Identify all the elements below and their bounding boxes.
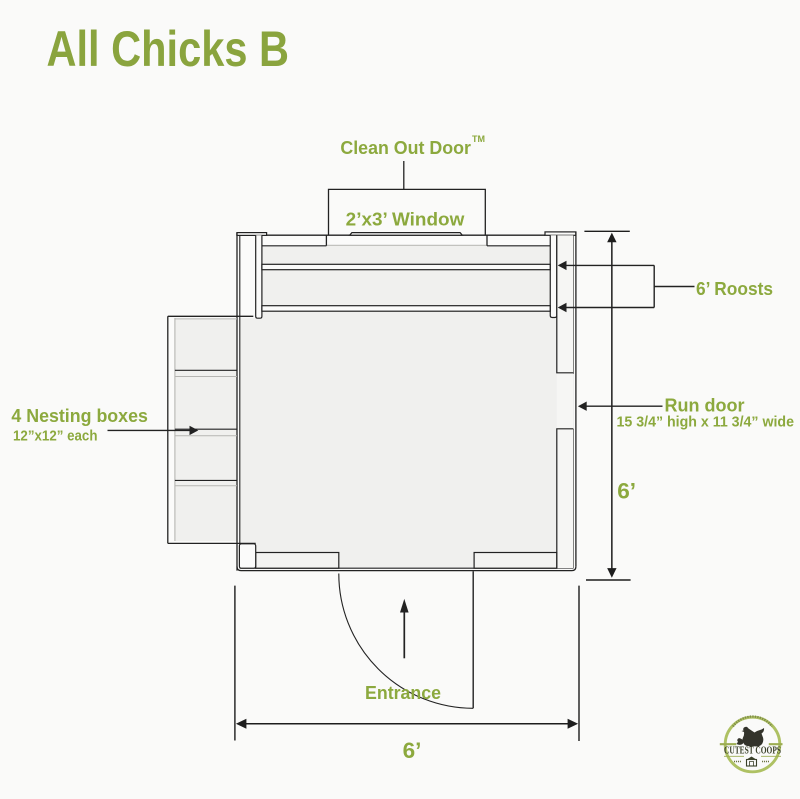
svg-text:4 Nesting boxes: 4 Nesting boxes [11,405,148,426]
svg-text:15 3/4” high x 11 3/4” wide: 15 3/4” high x 11 3/4” wide [617,415,795,431]
svg-text:Run door: Run door [665,395,745,416]
svg-text:6’: 6’ [617,479,636,504]
svg-text:Entrance: Entrance [365,682,441,703]
svg-text:TM: TM [472,134,485,144]
svg-text:6’ Roosts: 6’ Roosts [696,278,773,299]
svg-text:6’: 6’ [403,738,422,763]
svg-text:All Chicks B: All Chicks B [47,21,290,77]
svg-text:2’x3’ Window: 2’x3’ Window [346,208,465,229]
svg-text:CUTEST COOPS: CUTEST COOPS [724,745,781,757]
svg-text:Clean Out Door: Clean Out Door [340,137,471,158]
svg-text:12”x12” each: 12”x12” each [13,428,98,444]
